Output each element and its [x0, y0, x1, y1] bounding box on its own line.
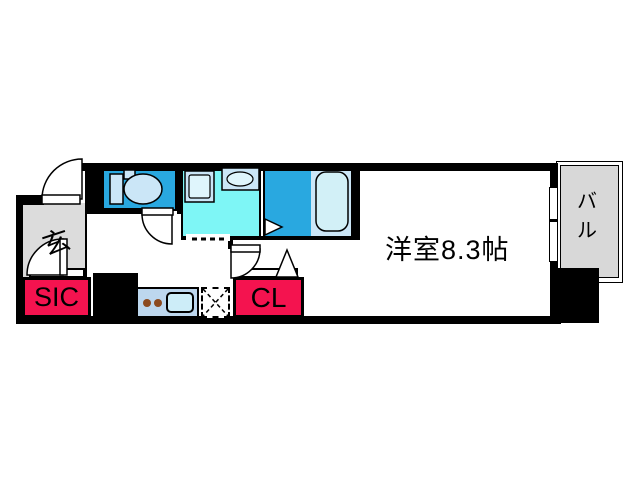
closet-box: CL — [233, 277, 304, 318]
floor-plan: SIC CL — [0, 0, 640, 480]
stove-burners-icon — [143, 299, 151, 307]
bathroom — [263, 166, 353, 238]
main-room-label: 洋室8.3帖 — [385, 228, 510, 267]
door-swing-icon — [42, 159, 82, 199]
wall-entrance-right — [85, 210, 87, 277]
wall-bath-right — [352, 163, 360, 240]
window-sash-divider — [549, 219, 558, 222]
washroom-sliding-door — [186, 234, 230, 241]
wall-mass-entrance-toilet — [85, 163, 103, 214]
wall-block-balcony — [553, 268, 599, 323]
shoe-closet-box: SIC — [22, 277, 91, 318]
wall-toilet-bottom — [102, 208, 144, 214]
closet-shelf — [238, 268, 298, 278]
washroom — [181, 166, 261, 238]
wall-toilet-washroom — [177, 163, 182, 214]
stove-burners-icon — [154, 299, 162, 307]
shoe-closet-shelf — [29, 268, 85, 278]
wall-top — [80, 163, 557, 171]
kitchen-sink-icon — [166, 292, 194, 313]
kitchen-counter — [136, 287, 199, 318]
balcony-label: バ ル — [574, 188, 600, 246]
wall-bath-bottom — [263, 236, 353, 240]
wall-right-upper — [550, 163, 558, 188]
wall-entrance-stub — [16, 195, 44, 205]
door-leaf — [231, 245, 260, 252]
refrigerator-space-icon — [201, 287, 230, 318]
door-swing-icon — [142, 214, 172, 244]
sliding-window-icon — [549, 187, 558, 262]
balcony-label-char: ル — [574, 217, 600, 246]
balcony-label-char: バ — [574, 188, 600, 217]
toilet-room — [102, 166, 177, 211]
shoe-closet-label: SIC — [34, 282, 79, 313]
fixtures-layer — [0, 0, 640, 480]
wall-block-sic — [93, 273, 138, 323]
bathtub-platform — [311, 168, 351, 236]
closet-label: CL — [251, 282, 287, 314]
